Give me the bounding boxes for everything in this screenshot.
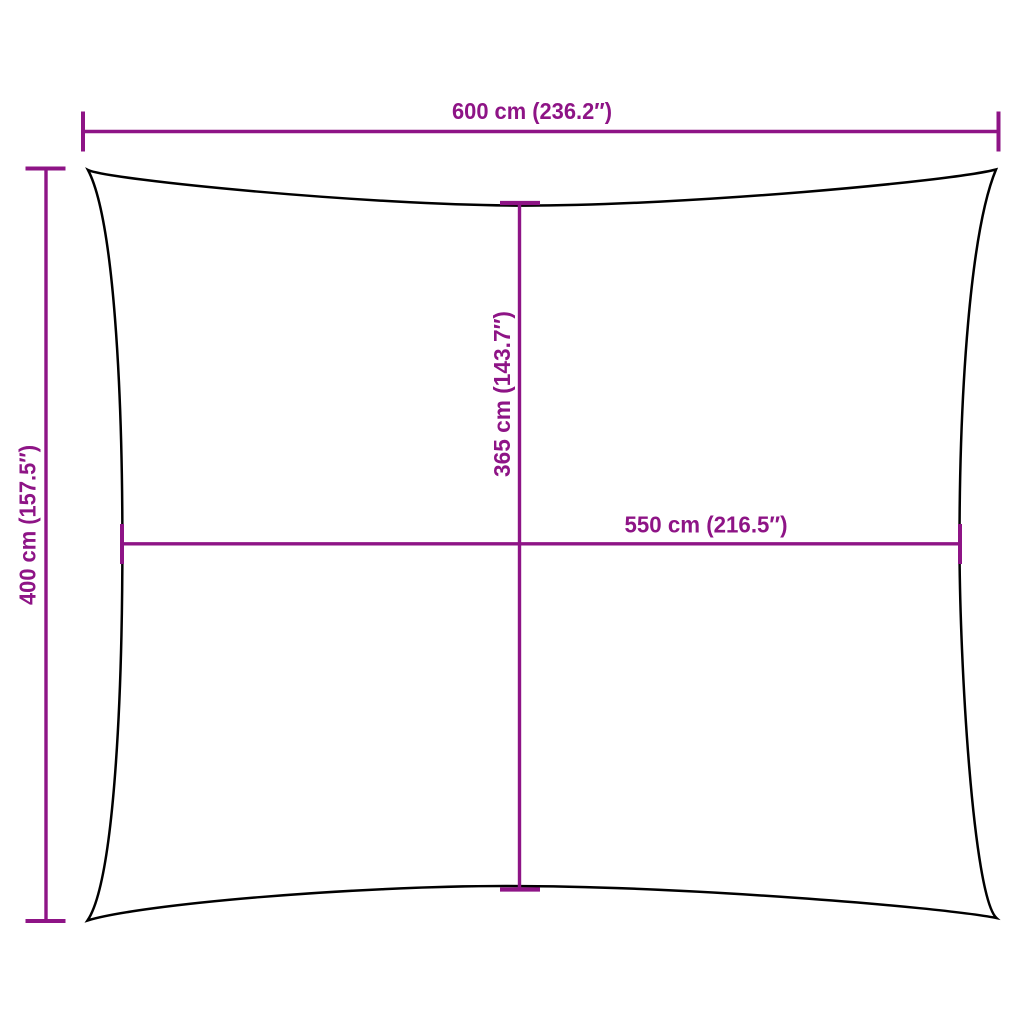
svg-text:600 cm (236.2″): 600 cm (236.2″) xyxy=(452,98,612,124)
svg-text:400 cm (157.5″): 400 cm (157.5″) xyxy=(15,445,41,605)
svg-text:550 cm (216.5″): 550 cm (216.5″) xyxy=(625,512,788,538)
svg-text:365 cm (143.7″): 365 cm (143.7″) xyxy=(489,311,515,477)
